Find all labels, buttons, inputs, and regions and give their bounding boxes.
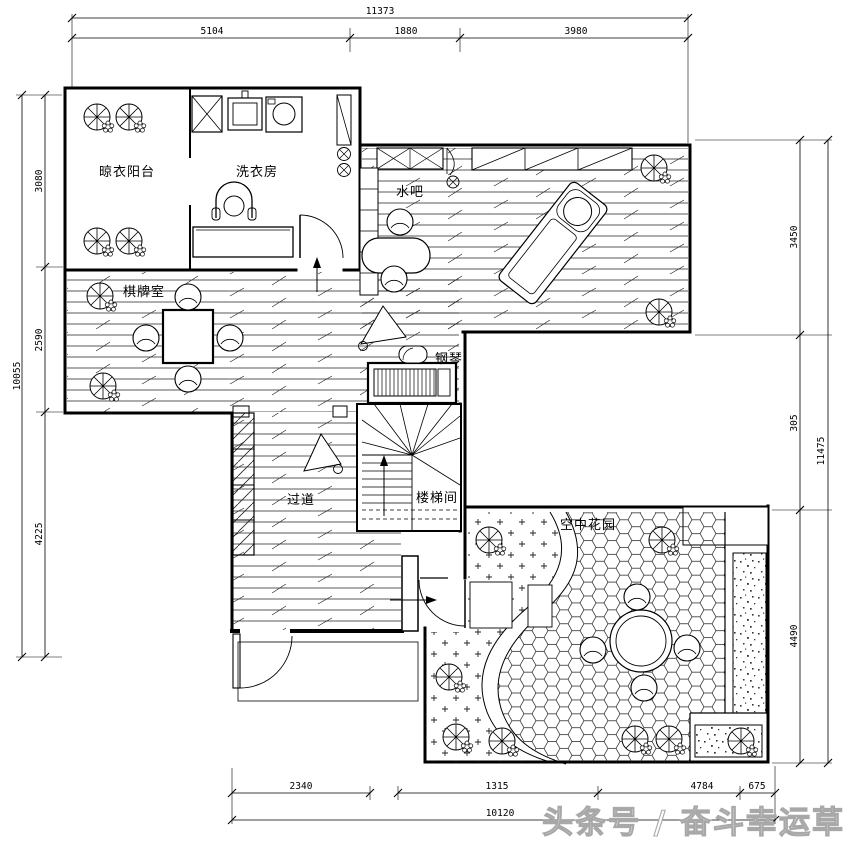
dim-left-seg2: 2590	[34, 328, 45, 351]
dim-left-seg3: 4225	[34, 523, 45, 546]
dim-bottom-seg3: 4784	[691, 781, 714, 792]
dim-right-seg3: 4490	[789, 624, 800, 647]
door-jamb-column	[402, 556, 418, 631]
corridor-floor-2	[357, 531, 401, 630]
chess-stool-n	[175, 284, 201, 310]
dim-top-seg3: 3980	[565, 26, 588, 37]
dimension-left: 10055 3080 2590 4225	[12, 91, 63, 661]
balcony-tree-2	[116, 104, 146, 132]
tall-cabinet	[337, 95, 351, 177]
watermark: 头条号 / 奋斗幸运草	[542, 805, 845, 841]
dim-left-total: 10055	[12, 362, 23, 391]
balcony-tree-1	[84, 104, 114, 132]
dim-left-seg1: 3080	[34, 169, 45, 192]
washing-machine	[266, 97, 302, 132]
label-stair-well: 楼梯间	[416, 491, 458, 506]
chess-stool-e	[217, 325, 243, 351]
chess-stool-w	[133, 325, 159, 351]
chess-stool-s	[175, 366, 201, 392]
balcony-tree-4	[116, 228, 146, 256]
floor-plan-drawing: 11373 5104 1880 3980 10055 3080 2590 422…	[0, 0, 854, 842]
dim-top-seg2: 1880	[395, 26, 418, 37]
bar-stool-1	[387, 209, 413, 235]
dim-bottom-seg2: 1315	[486, 781, 509, 792]
laundry-sink	[228, 91, 262, 130]
chess-table	[163, 310, 213, 363]
dim-right-total: 11475	[816, 437, 827, 466]
laundry-table	[193, 227, 293, 257]
x-cabinet	[192, 96, 222, 132]
laundry-door	[300, 215, 343, 258]
label-laundry-room: 洗衣房	[236, 164, 278, 180]
label-drying-balcony: 晾衣阳台	[99, 164, 155, 180]
label-piano: 钢琴	[435, 352, 463, 367]
dim-bottom-seg1: 2340	[290, 781, 313, 792]
armchair	[212, 182, 256, 220]
dim-bottom-seg4: 675	[748, 781, 765, 792]
corridor-cabinet-strip	[233, 413, 254, 555]
dim-bottom-total: 10120	[486, 808, 515, 819]
staircase	[357, 404, 461, 531]
balcony-tree-3	[84, 228, 114, 256]
laundry-block	[84, 91, 351, 292]
dim-right-seg2: 305	[789, 414, 800, 431]
label-water-bar: 水吧	[396, 185, 424, 200]
label-sky-garden: 空中花园	[560, 517, 616, 533]
floor-plan-page: 11373 5104 1880 3980 10055 3080 2590 422…	[0, 0, 854, 842]
dimension-top: 11373 5104 1880 3980	[68, 6, 692, 143]
label-chess-room: 棋牌室	[123, 284, 165, 300]
terrace-cabinets	[472, 148, 632, 170]
entry-landing	[238, 642, 418, 701]
dim-top-seg1: 5104	[201, 26, 224, 37]
label-corridor: 过道	[287, 493, 315, 508]
garden-gravel-strip	[733, 553, 766, 713]
sky-garden	[428, 512, 768, 764]
bar-stool-2	[381, 266, 407, 292]
garden-planter-1	[470, 582, 512, 628]
dim-top-total: 11373	[366, 6, 395, 17]
garden-planter-2	[528, 585, 552, 627]
dim-right-seg1: 3450	[789, 225, 800, 248]
